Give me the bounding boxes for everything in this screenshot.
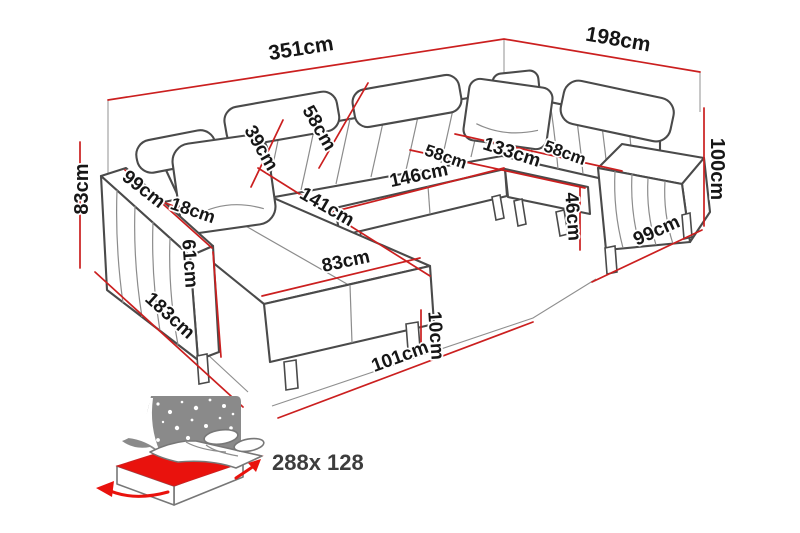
sleep-function-icon: 288x 128	[96, 396, 364, 505]
bed-with-starry-headboard-icon	[96, 396, 265, 505]
right-armrest	[598, 144, 710, 274]
diagram-canvas: 351cm 198cm 83cm 100cm 99cm 18cm 61cm 39…	[0, 0, 800, 533]
dim-label-198cm: 198cm	[584, 23, 652, 57]
dim-label-101cm: 101cm	[369, 337, 432, 377]
dim-label-351cm: 351cm	[267, 32, 335, 65]
dim-label-46cm: 46cm	[560, 192, 584, 242]
sofa-dimension-diagram: 351cm 198cm 83cm 100cm 99cm 18cm 61cm 39…	[0, 0, 800, 533]
dim-label-10cm: 10cm	[423, 311, 447, 361]
bed-size-label: 288x 128	[272, 450, 364, 475]
dim-label-61cm: 61cm	[177, 239, 201, 289]
dim-label-83cm-left: 83cm	[71, 163, 93, 214]
dim-label-100cm: 100cm	[706, 138, 728, 200]
